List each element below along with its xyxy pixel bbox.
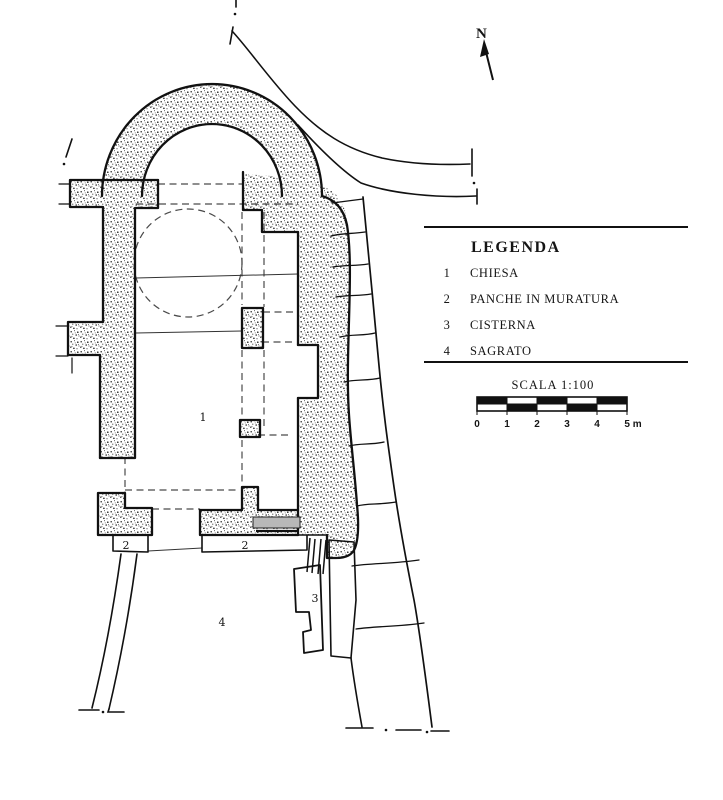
scale-tick-5m: 5 m <box>624 419 641 430</box>
legend-label-sagrato: SAGRATO <box>470 344 532 358</box>
legend-num-3: 3 <box>444 318 451 332</box>
east-wall <box>243 174 357 558</box>
north-arrow: N <box>476 26 493 80</box>
terrace-right-edge <box>363 197 432 727</box>
legend-num-4: 4 <box>444 344 451 358</box>
terrace-left-edge-lower <box>351 658 362 727</box>
label-chiesa: 1 <box>200 411 207 424</box>
bench-outlines <box>113 535 327 552</box>
north-label: N <box>476 26 487 42</box>
label-panche-right: 2 <box>242 539 249 552</box>
label-panche-left: 2 <box>123 539 130 552</box>
legend-num-2: 2 <box>444 292 451 306</box>
legend-label-chiesa: CHIESA <box>470 266 519 280</box>
legend-label-panche: PANCHE IN MURATURA <box>470 292 619 306</box>
scale-bar: SCALA 1:100 0 1 2 3 4 5 m <box>474 378 642 430</box>
scale-tick-0: 0 <box>474 419 480 430</box>
label-cisterna: 3 <box>312 592 319 605</box>
legend-item-cisterna: 3 CISTERNA <box>444 318 536 332</box>
legend-num-1: 1 <box>444 266 451 280</box>
scale-tick-3: 3 <box>564 419 570 430</box>
legend-title: LEGENDA <box>471 239 561 256</box>
scale-tick-4: 4 <box>594 419 600 430</box>
scale-title: SCALA 1:100 <box>512 378 595 392</box>
apse-dashed-circle <box>134 209 242 317</box>
label-sagrato: 4 <box>219 616 226 629</box>
cistern-outline <box>294 565 323 653</box>
north-arrow-icon <box>486 52 493 80</box>
nave-pier-upper <box>242 308 263 348</box>
legend-item-chiesa: 1 CHIESA <box>444 266 519 280</box>
bench-right <box>202 535 307 552</box>
left-wall <box>68 180 158 458</box>
legend-box: LEGENDA 1 CHIESA 2 PANCHE IN MURATURA 3 … <box>424 227 688 362</box>
bench-left <box>113 535 148 552</box>
cistern-channel <box>307 538 326 574</box>
sagrato-path-right <box>109 554 137 709</box>
legend-label-cisterna: CISTERNA <box>470 318 536 332</box>
drawing-sheet: 1 2 2 3 4 N LEGENDA 1 CHIESA 2 PANCHE IN… <box>0 0 723 800</box>
legend-item-panche: 2 PANCHE IN MURATURA <box>444 292 620 306</box>
church-plan-figure: 1 2 2 3 4 N LEGENDA 1 CHIESA 2 PANCHE IN… <box>0 0 723 800</box>
legend-item-sagrato: 4 SAGRATO <box>444 344 532 358</box>
scale-tick-1: 1 <box>504 419 510 430</box>
scale-tick-2: 2 <box>534 419 540 430</box>
sagrato-path-left <box>92 554 121 708</box>
nave-pier-lower <box>240 420 260 437</box>
